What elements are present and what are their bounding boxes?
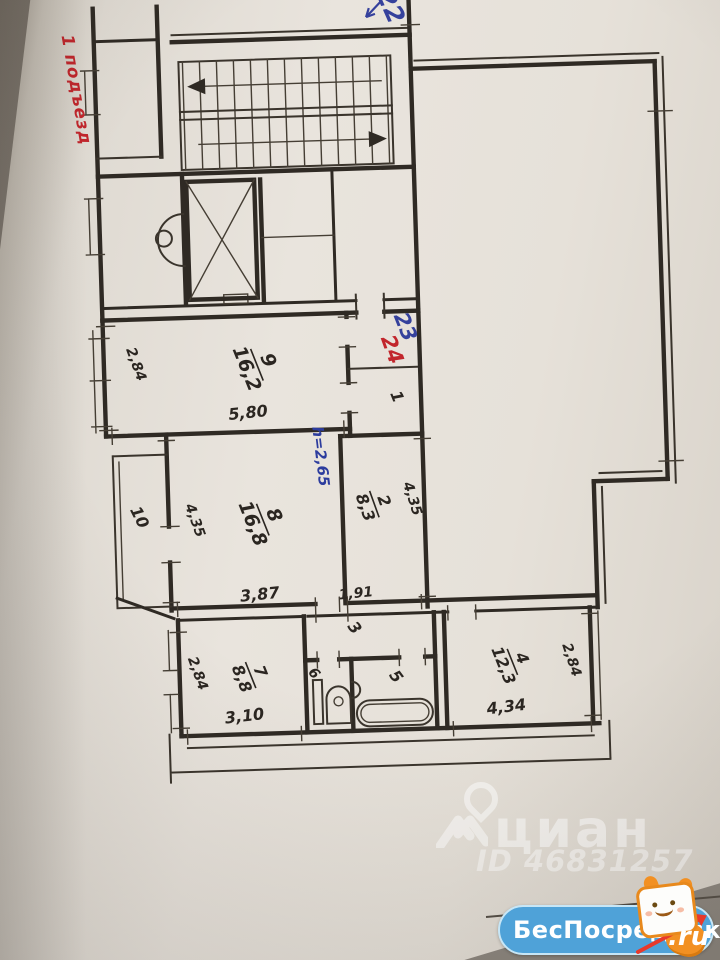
bathtub-icon bbox=[352, 679, 433, 726]
dim-room9-width: 2,84 bbox=[122, 345, 149, 383]
dim-room2-length: 4,35 bbox=[399, 479, 425, 518]
room-4-area: 12,3 bbox=[487, 644, 519, 688]
balcony bbox=[113, 455, 174, 621]
room-10-number: 10 bbox=[126, 503, 153, 531]
room-8-label: 8 16,8 bbox=[234, 489, 293, 549]
stair-arrow-up-icon bbox=[187, 78, 205, 95]
dim-room8-length: 3,87 bbox=[239, 583, 281, 606]
dim-room4-width: 2,84 bbox=[558, 641, 584, 679]
entrance-label: 1 подъезд bbox=[57, 33, 96, 147]
room-7-label: 7 8,8 bbox=[228, 655, 275, 696]
room-2-number: 2 bbox=[373, 492, 395, 509]
badge-tld: .ru bbox=[668, 922, 709, 952]
ceiling-height-note: h=2,65 bbox=[308, 425, 333, 487]
cian-listing-id: ID 46831257 bbox=[476, 844, 693, 878]
room-2-area: 8,3 bbox=[352, 491, 379, 524]
floor-plan-photo: 22 23 24 1 подъезд 9 16,2 2,84 5,80 1 2 … bbox=[0, 0, 720, 960]
garbage-chute bbox=[154, 174, 186, 305]
walls-outer-right bbox=[410, 53, 687, 613]
dim-room7-length: 3,10 bbox=[224, 704, 265, 728]
room-8-number: 8 bbox=[261, 505, 286, 525]
room-1-number: 1 bbox=[386, 388, 408, 405]
room-4-label: 4 12,3 bbox=[487, 636, 538, 687]
dim-room9-length: 5,80 bbox=[227, 401, 268, 424]
dim-room8-width: 4,35 bbox=[181, 501, 208, 540]
watermark-cian: циан ID 46831257 bbox=[436, 778, 716, 878]
cian-house-icon bbox=[436, 812, 488, 848]
room-3-number: 3 bbox=[344, 617, 366, 637]
walls-apartment bbox=[88, 305, 610, 785]
room-2-label: 2 8,3 bbox=[352, 484, 398, 524]
room-9-label: 9 16,2 bbox=[228, 334, 287, 394]
elevator-shaft bbox=[186, 180, 258, 300]
toilet-icon bbox=[313, 679, 351, 724]
apartment-number-22: 22 bbox=[370, 0, 411, 28]
lobby-duct-rooms bbox=[260, 169, 336, 301]
staircase bbox=[178, 55, 393, 170]
room-7-area: 8,8 bbox=[228, 662, 256, 695]
dim-room7-width: 2,84 bbox=[184, 655, 211, 693]
room-5-number: 5 bbox=[385, 666, 407, 686]
stair-arrow-down-icon bbox=[369, 131, 387, 148]
room-9-number: 9 bbox=[255, 350, 280, 370]
dim-room4-length: 4,34 bbox=[485, 695, 527, 719]
